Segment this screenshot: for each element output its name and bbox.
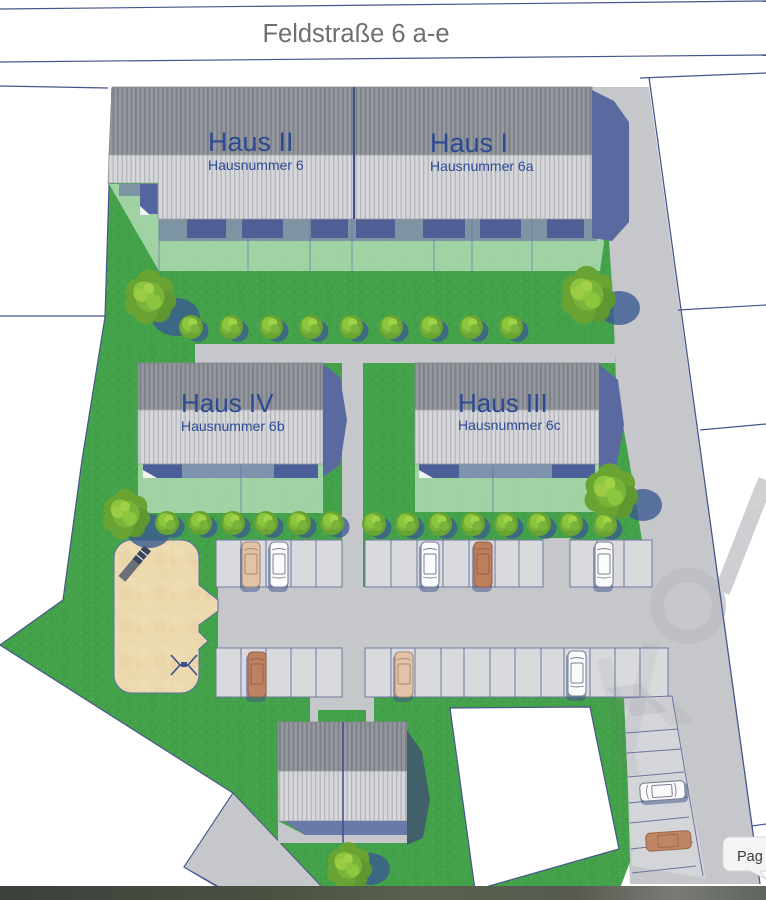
svg-text:Haus III: Haus III	[458, 388, 548, 418]
svg-text:Haus IV: Haus IV	[181, 388, 274, 418]
svg-text:Hausnummer 6: Hausnummer 6	[208, 157, 304, 173]
svg-text:Haus I: Haus I	[430, 128, 508, 158]
svg-text:Feldstraße 6 a-e: Feldstraße 6 a-e	[262, 20, 449, 48]
svg-text:Hausnummer 6a: Hausnummer 6a	[430, 158, 534, 174]
svg-text:Pag: Pag	[737, 849, 763, 865]
svg-text:Hausnummer 6c: Hausnummer 6c	[458, 417, 561, 433]
svg-text:Hausnummer 6b: Hausnummer 6b	[181, 418, 285, 434]
svg-text:Haus II: Haus II	[208, 127, 294, 157]
